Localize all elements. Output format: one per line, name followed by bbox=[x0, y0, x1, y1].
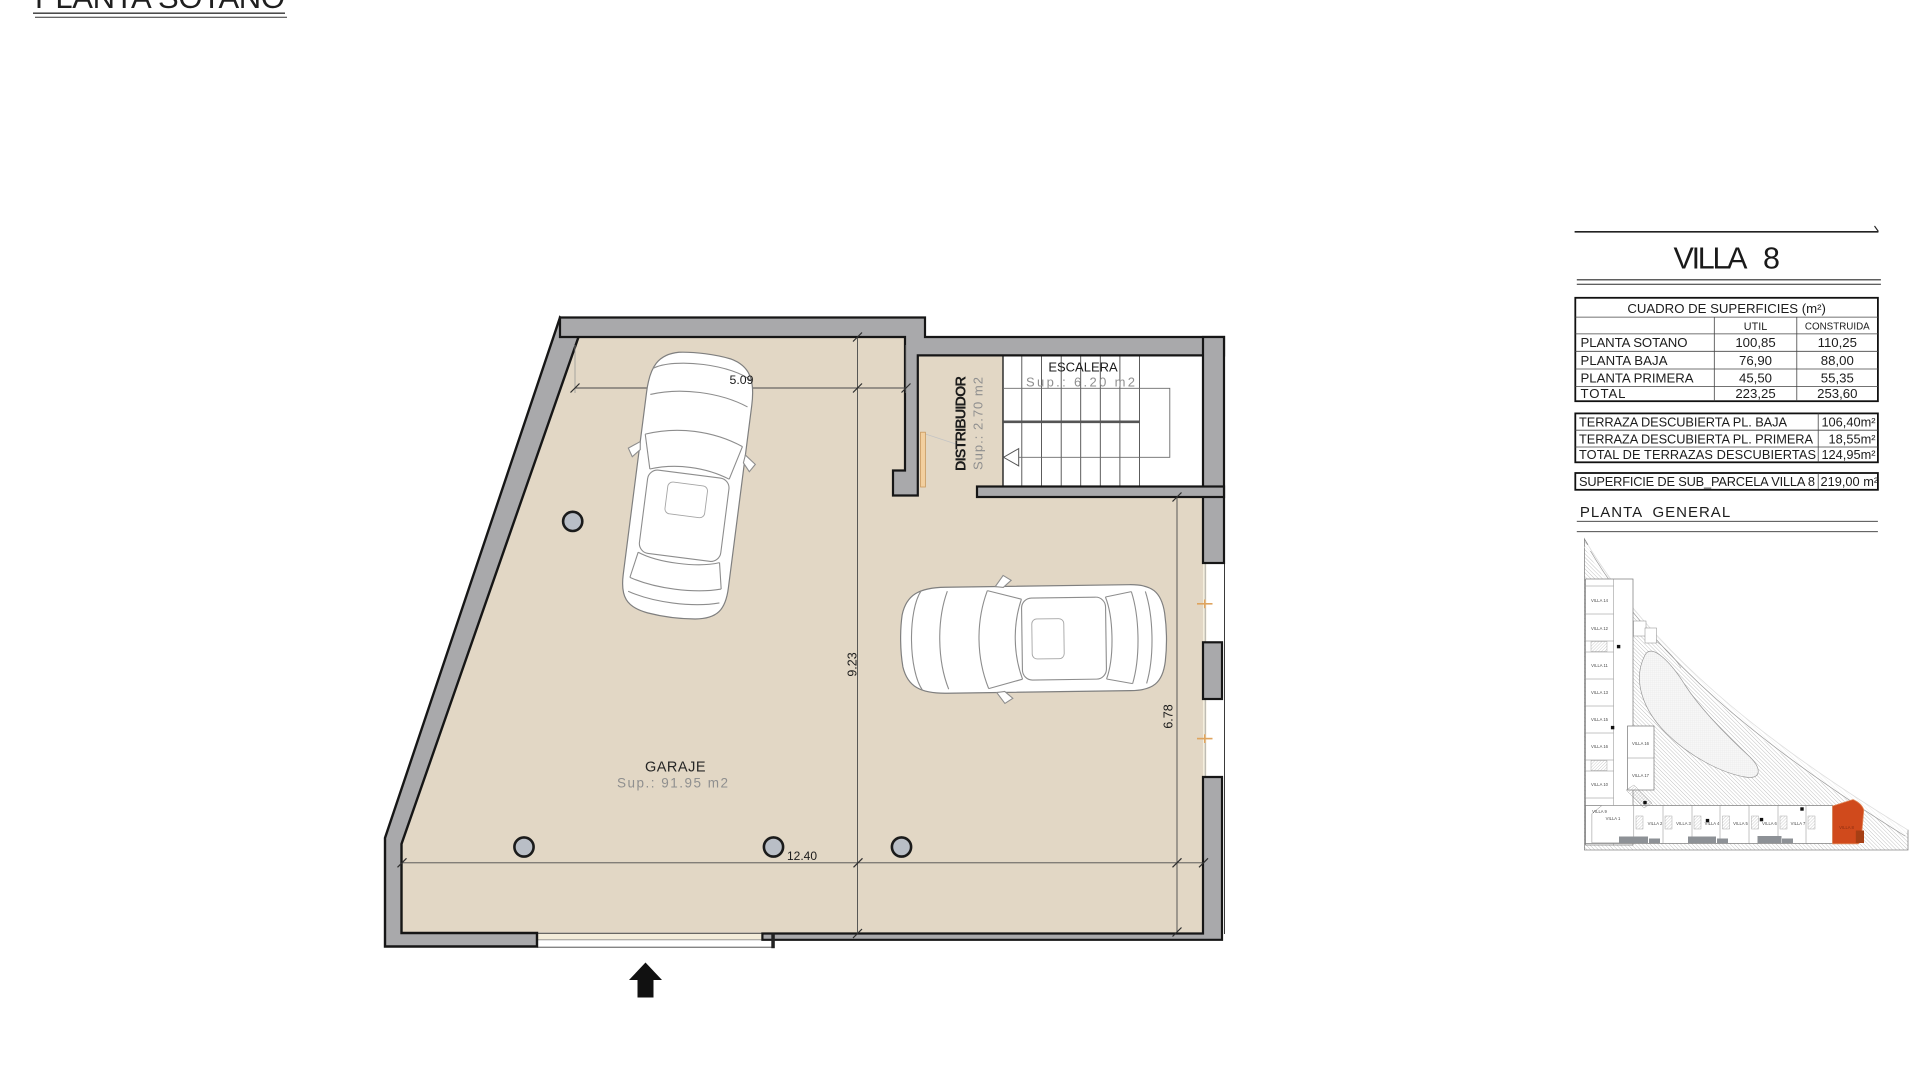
svg-text:Sup.: 2.70 m2: Sup.: 2.70 m2 bbox=[971, 377, 986, 470]
svg-text:TERRAZA DESCUBIERTA PL. BAJA: TERRAZA DESCUBIERTA PL. BAJA bbox=[1579, 415, 1787, 430]
svg-text:45,50: 45,50 bbox=[1739, 370, 1772, 385]
svg-text:CONSTRUIDA: CONSTRUIDA bbox=[1805, 322, 1870, 333]
svg-text:PLANTA BAJA: PLANTA BAJA bbox=[1581, 353, 1668, 368]
svg-text:110,25: 110,25 bbox=[1818, 335, 1857, 350]
svg-text:TOTAL DE TERRAZAS DESCUBIERTAS: TOTAL DE TERRAZAS DESCUBIERTAS bbox=[1579, 447, 1816, 462]
svg-text:PLANTA SOTANO: PLANTA SOTANO bbox=[1581, 335, 1688, 350]
svg-text:Sup.: 6.20 m2: Sup.: 6.20 m2 bbox=[1026, 375, 1135, 390]
svg-text:DISTRIBUIDOR: DISTRIBUIDOR bbox=[954, 375, 970, 471]
svg-text:VILLA 12: VILLA 12 bbox=[1591, 626, 1609, 631]
svg-text:Sup.: 91.95 m2: Sup.: 91.95 m2 bbox=[617, 776, 728, 791]
svg-text:88,00: 88,00 bbox=[1821, 353, 1854, 368]
svg-text:VILLA 9: VILLA 9 bbox=[1592, 809, 1607, 814]
svg-text:VILLA 5: VILLA 5 bbox=[1733, 821, 1748, 826]
svg-text:VILLA 14: VILLA 14 bbox=[1591, 598, 1609, 603]
svg-text:124,95m²: 124,95m² bbox=[1821, 447, 1876, 462]
svg-text:VILLA 13: VILLA 13 bbox=[1591, 690, 1609, 695]
svg-text:8: 8 bbox=[1763, 242, 1780, 276]
svg-text:5.09: 5.09 bbox=[730, 373, 754, 387]
svg-text:SUPERFICIE DE SUB_PARCELA VILL: SUPERFICIE DE SUB_PARCELA VILLA 8 bbox=[1579, 474, 1815, 489]
svg-text:12.40: 12.40 bbox=[787, 849, 817, 863]
svg-text:VILLA 4: VILLA 4 bbox=[1705, 821, 1720, 826]
svg-text:VILLA 6: VILLA 6 bbox=[1762, 821, 1777, 826]
svg-text:223,25: 223,25 bbox=[1735, 386, 1775, 401]
svg-text:PLANTA PRIMERA: PLANTA PRIMERA bbox=[1581, 370, 1694, 385]
svg-text:219,00 m²: 219,00 m² bbox=[1821, 474, 1879, 489]
svg-text:VILLA 1: VILLA 1 bbox=[1606, 816, 1621, 821]
svg-text:VILLA 16: VILLA 16 bbox=[1591, 744, 1609, 749]
svg-text:76,90: 76,90 bbox=[1739, 353, 1772, 368]
svg-text:VILLA 11: VILLA 11 bbox=[1591, 663, 1608, 668]
svg-text:CUADRO DE SUPERFICIES (m²): CUADRO DE SUPERFICIES (m²) bbox=[1627, 301, 1826, 316]
svg-text:TERRAZA DESCUBIERTA PL. PRIMER: TERRAZA DESCUBIERTA PL. PRIMERA bbox=[1579, 431, 1813, 446]
svg-text:18,55m²: 18,55m² bbox=[1829, 431, 1877, 446]
svg-text:VILLA 17: VILLA 17 bbox=[1632, 773, 1650, 778]
svg-text:VILLA: VILLA bbox=[1674, 242, 1749, 276]
svg-text:100,85: 100,85 bbox=[1735, 335, 1775, 350]
svg-text:PLANTA GENERAL: PLANTA GENERAL bbox=[1580, 504, 1731, 521]
svg-text:VILLA 15: VILLA 15 bbox=[1591, 717, 1609, 722]
svg-text:VILLA 8: VILLA 8 bbox=[1839, 825, 1854, 830]
svg-text:9.23: 9.23 bbox=[846, 652, 860, 676]
svg-text:TOTAL: TOTAL bbox=[1581, 386, 1626, 401]
svg-text:VILLA 2: VILLA 2 bbox=[1648, 821, 1663, 826]
svg-text:GARAJE: GARAJE bbox=[645, 760, 706, 776]
svg-text:55,35: 55,35 bbox=[1821, 370, 1854, 385]
svg-text:VILLA 16: VILLA 16 bbox=[1632, 741, 1650, 746]
svg-text:VILLA 3: VILLA 3 bbox=[1676, 821, 1691, 826]
svg-text:ESCALERA: ESCALERA bbox=[1048, 360, 1118, 375]
svg-text:VILLA 10: VILLA 10 bbox=[1591, 782, 1609, 787]
svg-text:UTIL: UTIL bbox=[1744, 321, 1767, 333]
svg-text:6.78: 6.78 bbox=[1162, 704, 1176, 728]
svg-text:253,60: 253,60 bbox=[1817, 386, 1857, 401]
svg-text:VILLA 7: VILLA 7 bbox=[1791, 821, 1806, 826]
svg-text:106,40m²: 106,40m² bbox=[1821, 415, 1876, 430]
